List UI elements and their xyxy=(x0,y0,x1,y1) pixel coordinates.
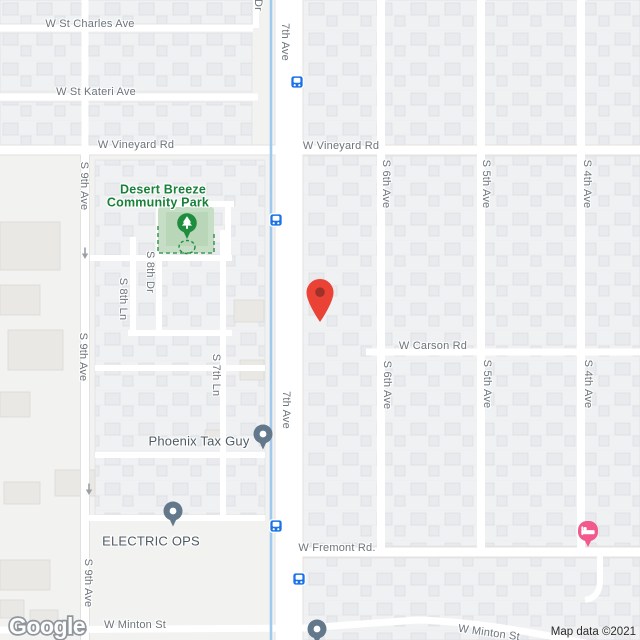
street-label-9th-ave-3: S 9th Ave xyxy=(82,559,94,608)
transit-stop-icon[interactable] xyxy=(293,573,306,586)
street-label-minton-w: W Minton St xyxy=(104,619,166,631)
street-label-st-charles: W St Charles Ave xyxy=(45,18,134,30)
street-label-4th-ave-s: S 4th Ave xyxy=(582,360,594,409)
transit-stop-icon[interactable] xyxy=(270,520,283,533)
street-label-8th-dr: S 8th Dr xyxy=(144,251,156,293)
street-label-st-kateri: W St Kateri Ave xyxy=(56,86,136,98)
street-label-fremont: W Fremont Rd. xyxy=(298,542,375,554)
map-canvas[interactable]: Google W St Charles Ave W St Kateri Ave … xyxy=(0,0,640,640)
street-label-5th-ave-n: S 5th Ave xyxy=(480,160,492,209)
phoenix-tax-guy-label[interactable]: Phoenix Tax Guy xyxy=(148,434,249,449)
electric-ops-label[interactable]: ELECTRIC OPS xyxy=(102,534,200,549)
street-label-9th-ave-2: S 9th Ave xyxy=(77,333,89,382)
street-label-7th-ave-s: 7th Ave xyxy=(280,391,292,429)
street-label-fragment: Ave xyxy=(477,0,489,1)
street-label-fragment: Ave xyxy=(377,0,389,1)
transit-stop-icon[interactable] xyxy=(270,214,283,227)
google-logo[interactable]: Google xyxy=(9,613,85,639)
street-label-7th-ln: S 7th Ln xyxy=(210,354,222,397)
street-label-9th-ave-1: S 9th Ave xyxy=(78,162,90,211)
street-label-8th-ln: S 8th Ln xyxy=(117,278,129,321)
street-label-carson: W Carson Rd xyxy=(399,340,467,352)
street-label-6th-ave-s: S 6th Ave xyxy=(381,361,393,410)
street-label-7th-ave-n: 7th Ave xyxy=(279,23,291,61)
street-label-fragment: Ave xyxy=(577,0,589,1)
street-label-6th-ave-n: S 6th Ave xyxy=(380,160,392,209)
street-label-vineyard-e: W Vineyard Rd xyxy=(303,140,379,152)
map-attribution: Map data ©2021 xyxy=(551,626,636,638)
transit-stop-icon[interactable] xyxy=(291,76,304,89)
park-label-line2[interactable]: Community Park xyxy=(107,197,209,210)
street-label-5th-ave-s: S 5th Ave xyxy=(481,360,493,409)
street-label-vineyard-w: W Vineyard Rd xyxy=(98,139,174,151)
street-label-fragment-dr: Dr xyxy=(252,0,264,11)
street-label-4th-ave-n: S 4th Ave xyxy=(581,160,593,209)
